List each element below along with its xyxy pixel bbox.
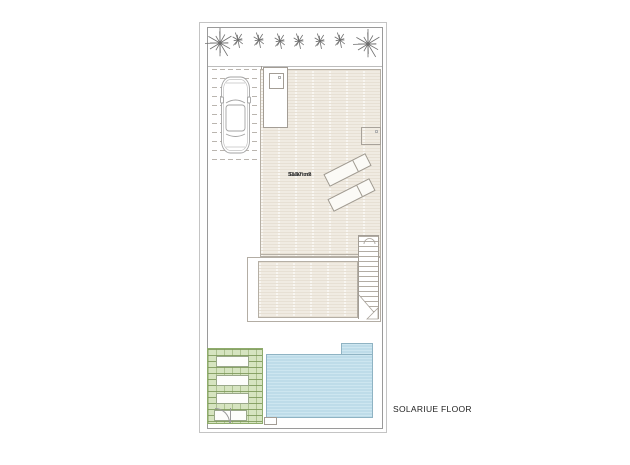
deck-edge-line [261,254,358,255]
gate-leaf-line [230,408,231,423]
sunbed-headrest-line [356,185,362,196]
palm-tree-icon [352,28,384,60]
shower-tray-outline [361,127,381,145]
planter-box [216,375,249,386]
vent-box [269,73,284,89]
staircase [358,235,379,319]
pool-access-step [264,417,277,425]
drain-mark [375,130,378,133]
car-top-view-icon [220,74,251,156]
swimming-pool [266,354,373,418]
stair-cut-marks [359,236,380,320]
planter-box [216,393,249,404]
planter-box [216,356,249,367]
sunbed-headrest-line [352,160,358,171]
vent-mark [278,76,281,79]
skylight-shaft [263,67,288,128]
room-area: 33.97 m2 [288,172,311,179]
lower-deck [258,261,358,318]
floorplan-canvas: Solarium 33.97 m2 SOLARIUE FLOOR [0,0,630,465]
tree-strip-divider [208,66,382,67]
floor-title: SOLARIUE FLOOR [393,404,472,414]
